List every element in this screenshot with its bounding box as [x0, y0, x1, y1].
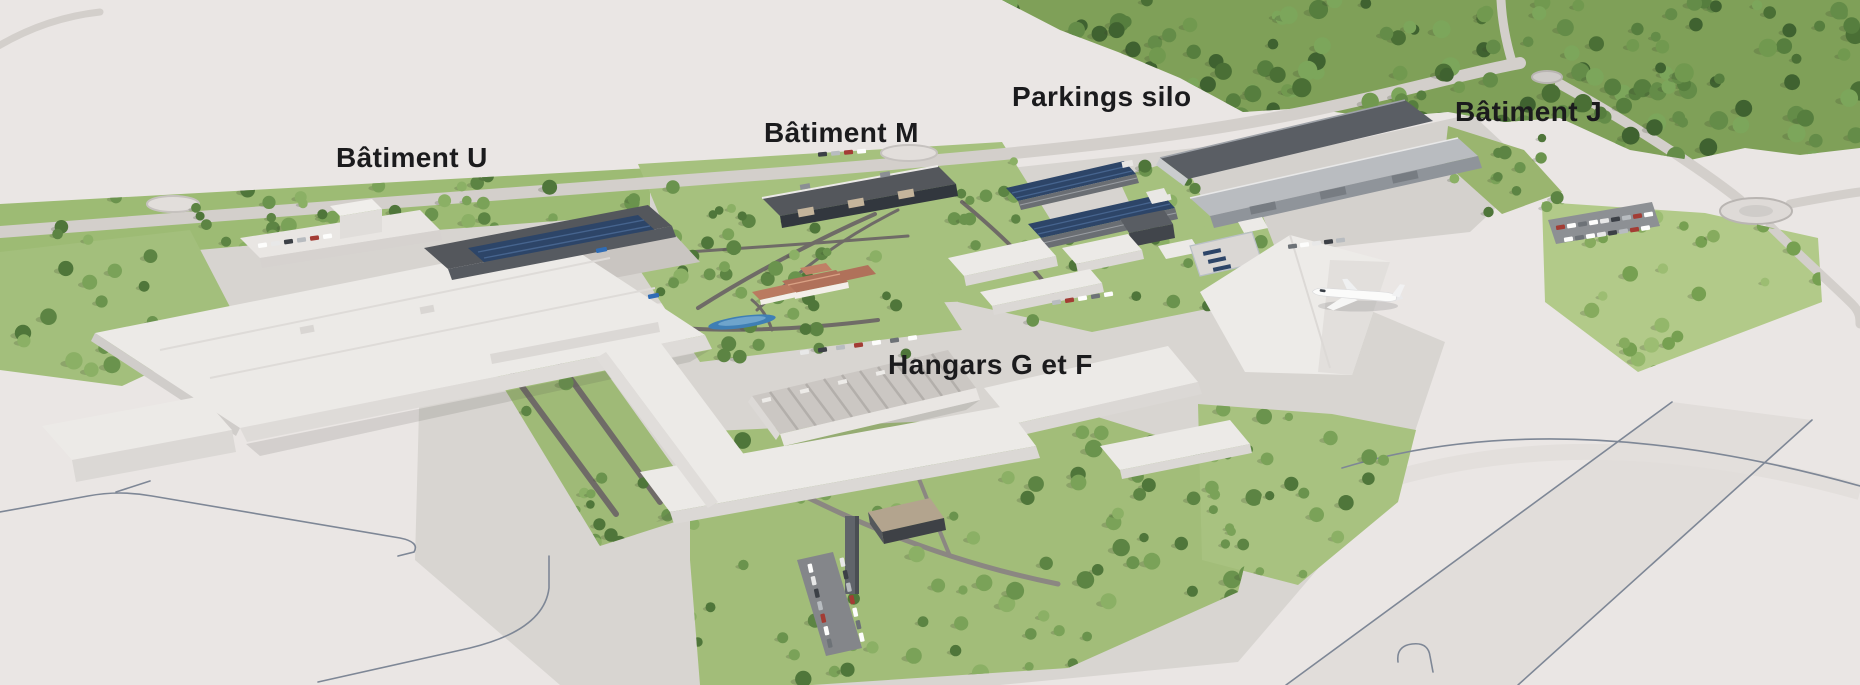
- tree: [998, 186, 1009, 197]
- tree: [65, 352, 82, 369]
- tree: [666, 180, 680, 194]
- tree: [628, 193, 640, 205]
- tree: [461, 214, 475, 228]
- tree: [1040, 557, 1053, 570]
- tree: [1149, 47, 1166, 64]
- tree: [717, 349, 731, 363]
- tree: [1210, 490, 1220, 500]
- tree: [789, 649, 800, 660]
- tree: [970, 240, 980, 250]
- car: [818, 152, 827, 157]
- roundabout-forest: [1532, 71, 1562, 83]
- tree: [701, 236, 714, 249]
- tree: [196, 212, 205, 221]
- tree: [1101, 593, 1117, 609]
- tree: [1814, 21, 1825, 32]
- tree: [1131, 291, 1141, 301]
- tree: [1699, 138, 1717, 156]
- tree: [1782, 23, 1796, 37]
- tree: [1167, 295, 1181, 309]
- tree: [1393, 66, 1408, 81]
- tree: [1665, 8, 1677, 20]
- tree: [726, 240, 741, 255]
- tree: [956, 189, 966, 199]
- tree: [1314, 37, 1331, 54]
- tree: [1483, 72, 1498, 87]
- tree: [1270, 67, 1286, 83]
- tree: [1126, 556, 1139, 569]
- tree: [1323, 431, 1337, 445]
- tree: [753, 339, 765, 351]
- tree: [1011, 214, 1020, 223]
- tree: [1483, 207, 1493, 217]
- tree: [1792, 54, 1802, 64]
- tree: [1109, 22, 1125, 38]
- tree: [1477, 7, 1492, 22]
- site-plan-svg: Bâtiment U Bâtiment M Parkings silo Bâti…: [0, 0, 1860, 685]
- tree: [1189, 183, 1200, 194]
- tree: [719, 261, 730, 272]
- tree: [810, 322, 824, 336]
- tree: [1298, 488, 1309, 499]
- tree: [1631, 23, 1643, 35]
- tree: [1538, 134, 1546, 142]
- tree: [1689, 18, 1703, 32]
- tree: [1787, 124, 1805, 142]
- tree: [295, 191, 307, 203]
- tree: [221, 237, 231, 247]
- tree: [1557, 19, 1574, 36]
- tree: [1082, 632, 1092, 642]
- tree: [1616, 98, 1632, 114]
- tree: [1589, 36, 1604, 51]
- tree: [108, 264, 122, 278]
- tree: [1450, 174, 1460, 184]
- tree: [1541, 201, 1552, 212]
- tree: [1071, 475, 1087, 491]
- label-hangars-g-f: Hangars G et F: [888, 349, 1093, 380]
- tree: [1209, 505, 1218, 514]
- park-building-part: [855, 516, 859, 594]
- tree: [959, 214, 970, 225]
- tree: [1709, 111, 1728, 130]
- tree: [457, 182, 467, 192]
- tree: [1672, 111, 1685, 124]
- aerial-site-rendering: Bâtiment U Bâtiment M Parkings silo Bâti…: [0, 0, 1860, 685]
- tree: [1838, 48, 1851, 61]
- tree: [810, 223, 821, 234]
- tree: [1493, 172, 1503, 182]
- tree: [1763, 6, 1776, 19]
- tree: [1551, 191, 1564, 204]
- tree: [1619, 338, 1630, 349]
- tree: [593, 518, 605, 530]
- label-batiment-u: Bâtiment U: [336, 142, 488, 173]
- tree: [967, 531, 980, 544]
- tree: [317, 209, 327, 219]
- label-parkings-silo: Parkings silo: [1012, 81, 1192, 112]
- tree: [1622, 266, 1638, 282]
- tree: [950, 645, 961, 656]
- tree: [96, 295, 108, 307]
- tree: [477, 197, 490, 210]
- tree: [82, 275, 97, 290]
- tree: [1586, 68, 1604, 86]
- tree: [1020, 491, 1034, 505]
- tree: [58, 261, 73, 276]
- tree: [17, 334, 30, 347]
- tree: [1027, 314, 1040, 327]
- car: [844, 150, 853, 155]
- tree: [906, 648, 922, 664]
- tree: [1038, 610, 1049, 621]
- tree: [1138, 160, 1151, 173]
- label-batiment-j: Bâtiment J: [1455, 96, 1602, 127]
- tree: [586, 500, 595, 509]
- tree: [201, 219, 212, 230]
- car: [857, 149, 866, 154]
- tree: [1162, 28, 1176, 42]
- tree: [1025, 662, 1034, 671]
- car: [831, 151, 840, 156]
- tree: [1654, 318, 1669, 333]
- tree: [1532, 6, 1546, 20]
- tree: [949, 511, 958, 520]
- tree: [1175, 537, 1188, 550]
- label-batiment-m: Bâtiment M: [764, 117, 919, 148]
- tree: [1113, 539, 1130, 556]
- tree: [738, 211, 747, 220]
- tree: [83, 235, 93, 245]
- tree: [1759, 39, 1777, 57]
- tree: [800, 323, 812, 335]
- tree: [1830, 2, 1848, 20]
- tree: [1440, 68, 1454, 82]
- tree: [777, 632, 788, 643]
- tree: [1133, 488, 1146, 501]
- tree: [139, 281, 150, 292]
- tree: [1675, 63, 1694, 82]
- tree: [1292, 78, 1311, 97]
- tree: [1010, 157, 1018, 165]
- tree: [1256, 409, 1272, 425]
- tree: [586, 489, 595, 498]
- tree: [1710, 0, 1722, 12]
- tree: [882, 291, 891, 300]
- tree: [709, 210, 718, 219]
- tree: [1076, 426, 1090, 440]
- tree: [965, 196, 974, 205]
- tree: [980, 190, 993, 203]
- tree: [1361, 449, 1377, 465]
- tree: [52, 229, 63, 240]
- tree: [40, 308, 57, 325]
- tree: [735, 287, 747, 299]
- tree: [1025, 628, 1037, 640]
- tree: [1362, 472, 1375, 485]
- tree: [462, 196, 472, 206]
- tree: [1265, 491, 1274, 500]
- tree: [1646, 119, 1662, 135]
- tree: [604, 528, 617, 541]
- tree: [267, 213, 276, 222]
- tree: [931, 579, 945, 593]
- tree: [706, 602, 716, 612]
- tree: [840, 663, 854, 677]
- tree: [1761, 278, 1770, 287]
- tree: [704, 268, 716, 280]
- tree: [104, 356, 121, 373]
- tree: [1261, 453, 1274, 466]
- tree: [84, 362, 99, 377]
- tree: [1604, 79, 1621, 96]
- tree: [1572, 0, 1584, 11]
- tree: [1285, 413, 1293, 421]
- tree: [1028, 476, 1044, 492]
- tree: [1006, 582, 1024, 600]
- tree: [1215, 63, 1232, 80]
- tree: [1692, 287, 1707, 302]
- tree: [478, 212, 491, 225]
- tree: [808, 300, 819, 311]
- tree: [1280, 6, 1298, 24]
- tree: [1656, 40, 1670, 54]
- tree: [727, 204, 736, 213]
- tree: [596, 473, 607, 484]
- tree: [1707, 230, 1720, 243]
- tree: [1309, 507, 1324, 522]
- tree: [1658, 263, 1668, 273]
- tree: [722, 228, 734, 240]
- tree: [1144, 553, 1161, 570]
- tree: [1139, 533, 1148, 542]
- tree: [191, 203, 201, 213]
- tree: [1403, 21, 1416, 34]
- tree: [1284, 477, 1298, 491]
- tree: [918, 616, 929, 627]
- tree: [1787, 241, 1801, 255]
- tree: [1584, 303, 1599, 318]
- tree: [1843, 17, 1860, 34]
- tree: [1655, 63, 1666, 74]
- tree: [438, 194, 451, 207]
- tree: [1598, 291, 1607, 300]
- tree: [866, 641, 878, 653]
- tree: [1626, 39, 1639, 52]
- tree: [1809, 134, 1823, 148]
- tree: [1225, 523, 1234, 532]
- tree: [1784, 74, 1800, 90]
- tree: [1378, 455, 1389, 466]
- tree: [262, 196, 275, 209]
- tree: [1183, 18, 1198, 33]
- tree: [1512, 186, 1522, 196]
- tree: [1200, 76, 1216, 92]
- tree: [1493, 148, 1503, 158]
- tree: [1092, 564, 1104, 576]
- tree: [1679, 221, 1689, 231]
- tree: [1187, 586, 1198, 597]
- tree: [1237, 539, 1249, 551]
- tree: [1651, 32, 1661, 42]
- tree: [1221, 539, 1230, 548]
- tree: [1622, 127, 1640, 145]
- tree: [789, 250, 800, 261]
- tree: [1433, 20, 1451, 38]
- tree: [870, 250, 882, 262]
- tree: [1735, 100, 1752, 117]
- tree: [1187, 492, 1201, 506]
- tree: [1564, 45, 1579, 60]
- tree: [1338, 495, 1353, 510]
- tree: [144, 249, 158, 263]
- tree: [1085, 440, 1103, 458]
- tree: [1453, 81, 1465, 93]
- tree: [1752, 0, 1762, 10]
- tree: [976, 575, 993, 592]
- tree: [1127, 42, 1140, 55]
- tree: [1776, 38, 1792, 54]
- tree: [823, 248, 832, 257]
- tree: [1486, 40, 1501, 55]
- tree: [733, 350, 747, 364]
- tree: [1644, 337, 1659, 352]
- tree: [1268, 39, 1279, 50]
- tree: [542, 180, 557, 195]
- tree: [1183, 258, 1193, 268]
- roundabout-east-island: [1739, 205, 1773, 217]
- tree: [1187, 45, 1201, 59]
- tree: [1733, 117, 1750, 134]
- tree: [954, 616, 968, 630]
- tree: [521, 406, 531, 416]
- tree: [1002, 471, 1015, 484]
- tree: [1535, 152, 1546, 163]
- tree: [1054, 625, 1065, 636]
- tree: [768, 261, 783, 276]
- tree: [1299, 570, 1308, 579]
- tree: [1514, 162, 1525, 173]
- tree: [958, 585, 967, 594]
- tree: [1662, 337, 1675, 350]
- tree: [1797, 110, 1814, 127]
- tree: [1244, 85, 1261, 102]
- tree: [1523, 37, 1534, 48]
- tree: [1331, 531, 1344, 544]
- tree: [909, 546, 925, 562]
- tree: [1298, 61, 1317, 80]
- tree: [890, 299, 902, 311]
- tree: [787, 308, 799, 320]
- tree: [668, 277, 679, 288]
- tree: [738, 560, 748, 570]
- tree: [1094, 426, 1109, 441]
- tree: [1380, 27, 1394, 41]
- tree: [1112, 508, 1124, 520]
- tree: [1416, 90, 1426, 100]
- tree: [1840, 89, 1858, 107]
- tree: [1246, 489, 1263, 506]
- tree: [1714, 74, 1725, 85]
